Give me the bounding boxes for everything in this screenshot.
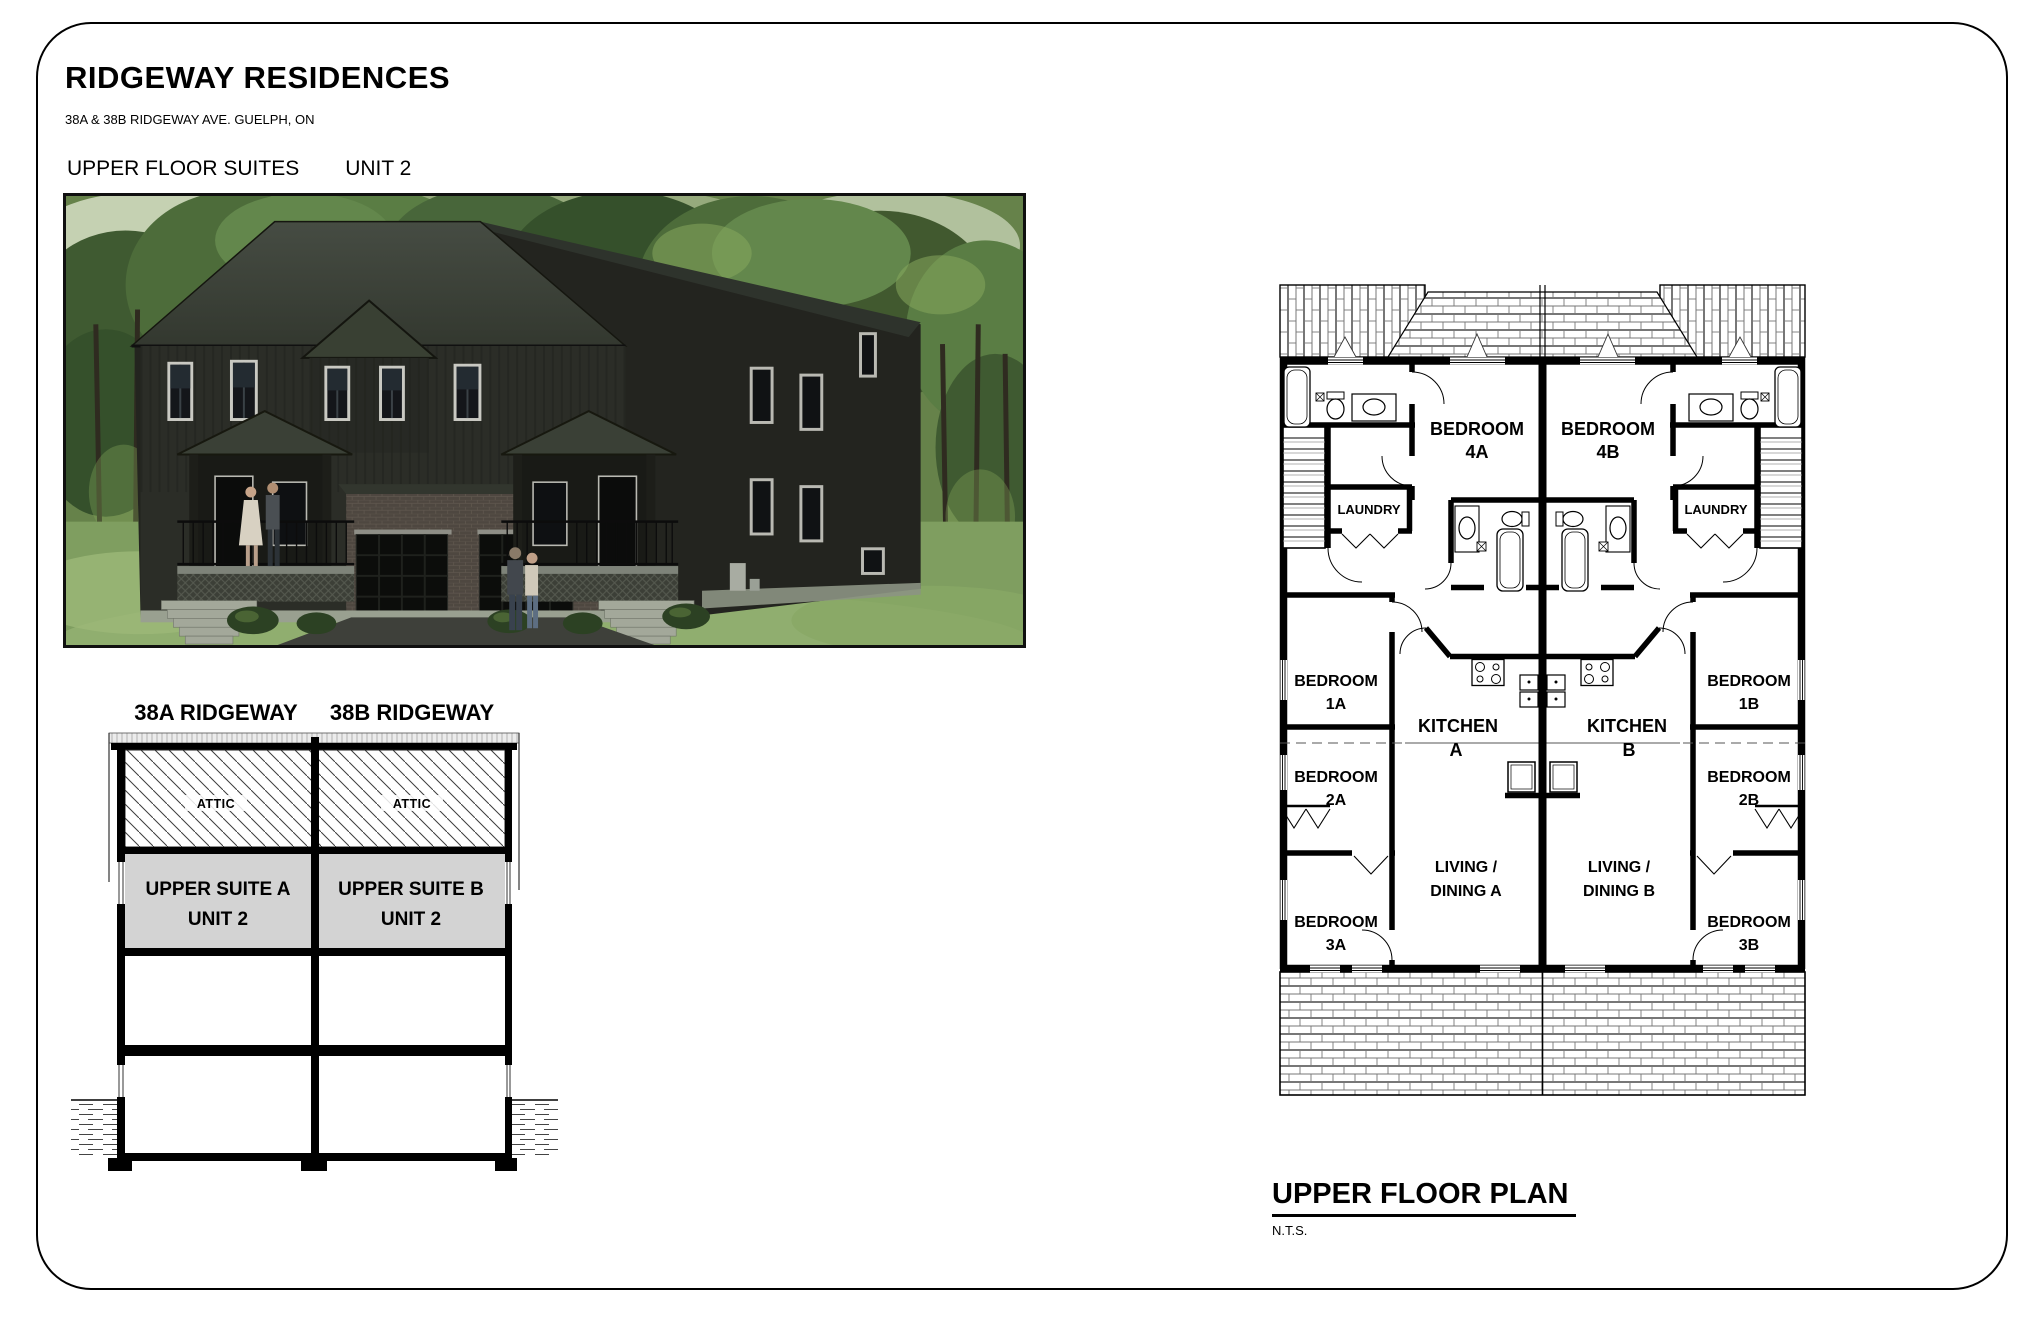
label-bedroom-3a: BEDROOM3A: [1294, 914, 1378, 954]
section-wall-party: [311, 737, 319, 1161]
page-title: RIDGEWAY RESIDENCES: [65, 60, 450, 96]
label-living-a: LIVING /DINING A: [1430, 859, 1502, 900]
suite-a-line1: UPPER SUITE A: [146, 879, 291, 900]
label-laundry-a: LAUNDRY: [1337, 502, 1400, 517]
label-bedroom-1a: BEDROOM1A: [1294, 673, 1378, 713]
grade-hatch-right: [512, 1100, 558, 1156]
utility-meter: [730, 563, 746, 591]
exterior-rendering: [63, 193, 1026, 648]
suite-b-line1: UPPER SUITE B: [338, 879, 484, 900]
suite-b-line2: UNIT 2: [381, 909, 441, 930]
section-wall-left: [117, 743, 125, 1161]
cross-section: 38A RIDGEWAY 38B RIDGEWAY ATTIC ATTIC UP…: [55, 692, 570, 1174]
drawing-sheet: RIDGEWAY RESIDENCES 38A & 38B RIDGEWAY A…: [0, 0, 2040, 1320]
label-kitchen-b: KITCHENB: [1587, 716, 1667, 760]
label-laundry-b: LAUNDRY: [1684, 502, 1747, 517]
suite-b-area: [318, 854, 505, 948]
sheet-unit-label: UNIT 2: [345, 157, 411, 181]
page-subtitle: 38A & 38B RIDGEWAY AVE. GUELPH, ON: [65, 112, 315, 127]
bathroom-fixtures: [1284, 367, 1396, 427]
section-header-38b: 38B RIDGEWAY: [330, 700, 495, 725]
label-kitchen-a: KITCHENA: [1418, 716, 1498, 760]
stairs: [1283, 427, 1325, 548]
label-bedroom-2a: BEDROOM2A: [1294, 769, 1378, 809]
rendering-svg: [66, 196, 1023, 645]
section-header-38a: 38A RIDGEWAY: [134, 700, 298, 725]
porch-window-b: [533, 482, 567, 545]
label-living-b: LIVING /DINING B: [1583, 859, 1655, 900]
suite-a-line2: UNIT 2: [188, 909, 248, 930]
label-bedroom-2b: BEDROOM2B: [1707, 769, 1791, 809]
central-bath-fixtures: [1455, 506, 1529, 591]
label-bedroom-4a: BEDROOM4A: [1430, 419, 1524, 462]
attic-b-label: ATTIC: [393, 797, 431, 811]
grade-hatch-left: [71, 1100, 117, 1156]
upper-floor-plan: BEDROOM4A BEDROOM4B LAUNDRY LAUNDRY BEDR…: [1272, 282, 1812, 1104]
label-bedroom-1b: BEDROOM1B: [1707, 673, 1791, 713]
label-bedroom-4b: BEDROOM4B: [1561, 419, 1655, 462]
plan-scale: N.T.S.: [1272, 1223, 1576, 1238]
person-porch-man: [266, 483, 280, 566]
suite-a-area: [125, 854, 312, 948]
roof-hatch-center: [1388, 292, 1697, 357]
party-wall: [1539, 357, 1547, 972]
plan-title: UPPER FLOOR PLAN: [1272, 1178, 1576, 1217]
sheet-label: UPPER FLOOR SUITES: [67, 157, 299, 181]
attic-a-label: ATTIC: [197, 797, 235, 811]
garage-door-a: [354, 530, 451, 618]
sheet-label-row: UPPER FLOOR SUITES UNIT 2: [67, 157, 411, 181]
label-bedroom-3b: BEDROOM3B: [1707, 914, 1791, 954]
section-wall-right: [505, 743, 512, 1161]
plan-caption: UPPER FLOOR PLAN N.T.S.: [1272, 1178, 1576, 1238]
